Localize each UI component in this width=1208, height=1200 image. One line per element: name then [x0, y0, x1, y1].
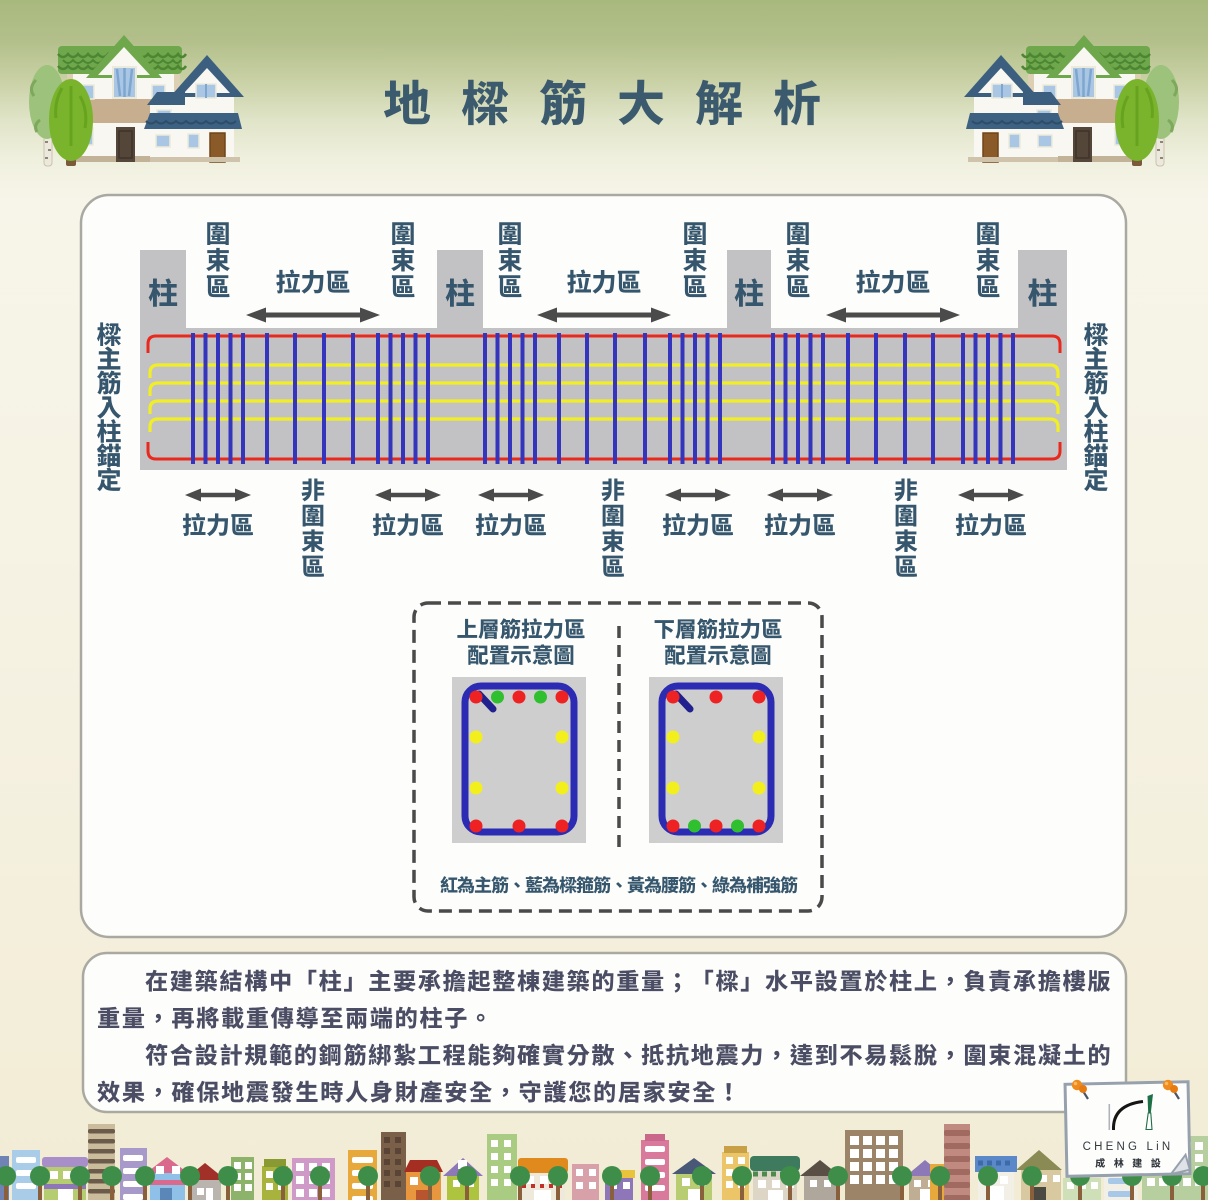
svg-text:CHENG LiN: CHENG LiN	[1083, 1141, 1174, 1153]
